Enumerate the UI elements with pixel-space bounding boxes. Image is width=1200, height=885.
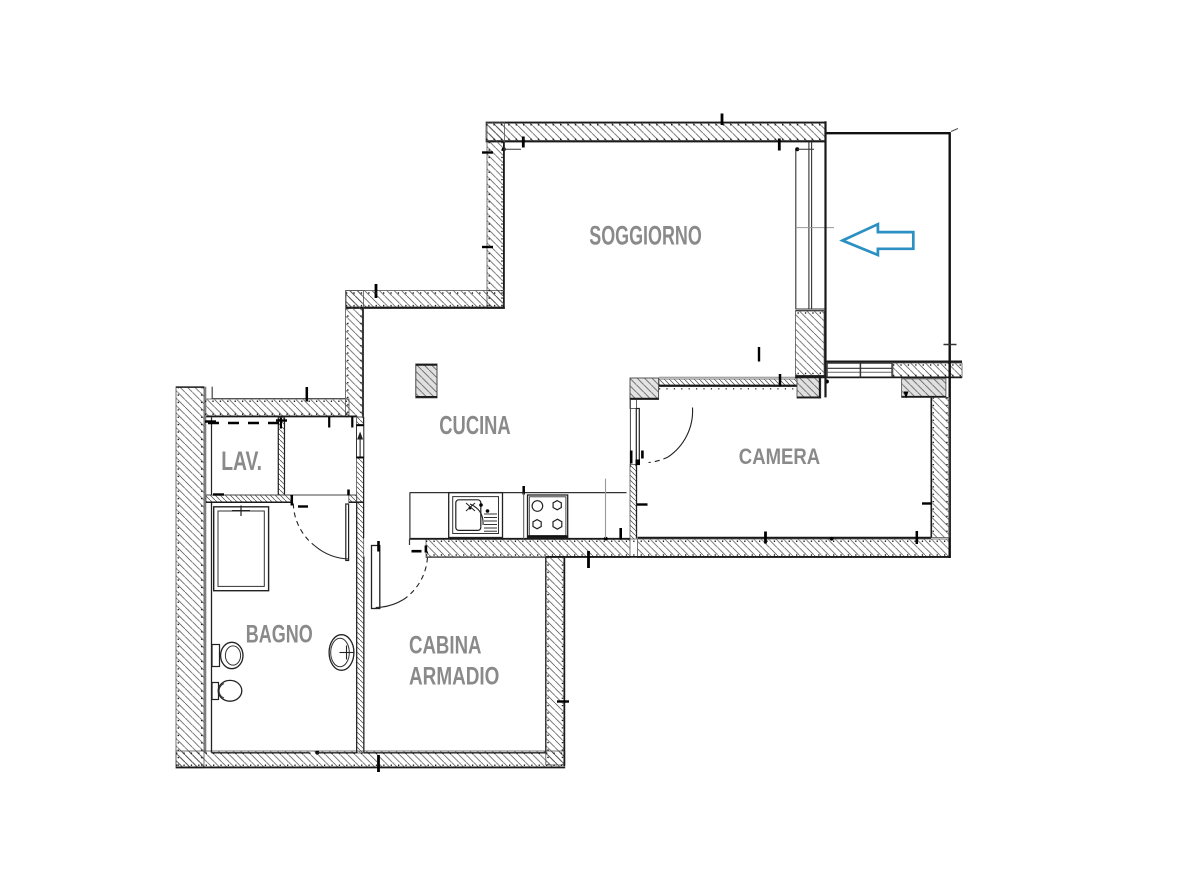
svg-text:CABINA: CABINA [409,632,482,660]
svg-text:SOGGIORNO: SOGGIORNO [589,221,702,251]
svg-text:CAMERA: CAMERA [739,444,820,469]
svg-text:BAGNO: BAGNO [246,621,313,649]
svg-text:ARMADIO: ARMADIO [409,663,499,691]
svg-text:LAV.: LAV. [221,446,262,476]
svg-text:CUCINA: CUCINA [439,412,510,440]
